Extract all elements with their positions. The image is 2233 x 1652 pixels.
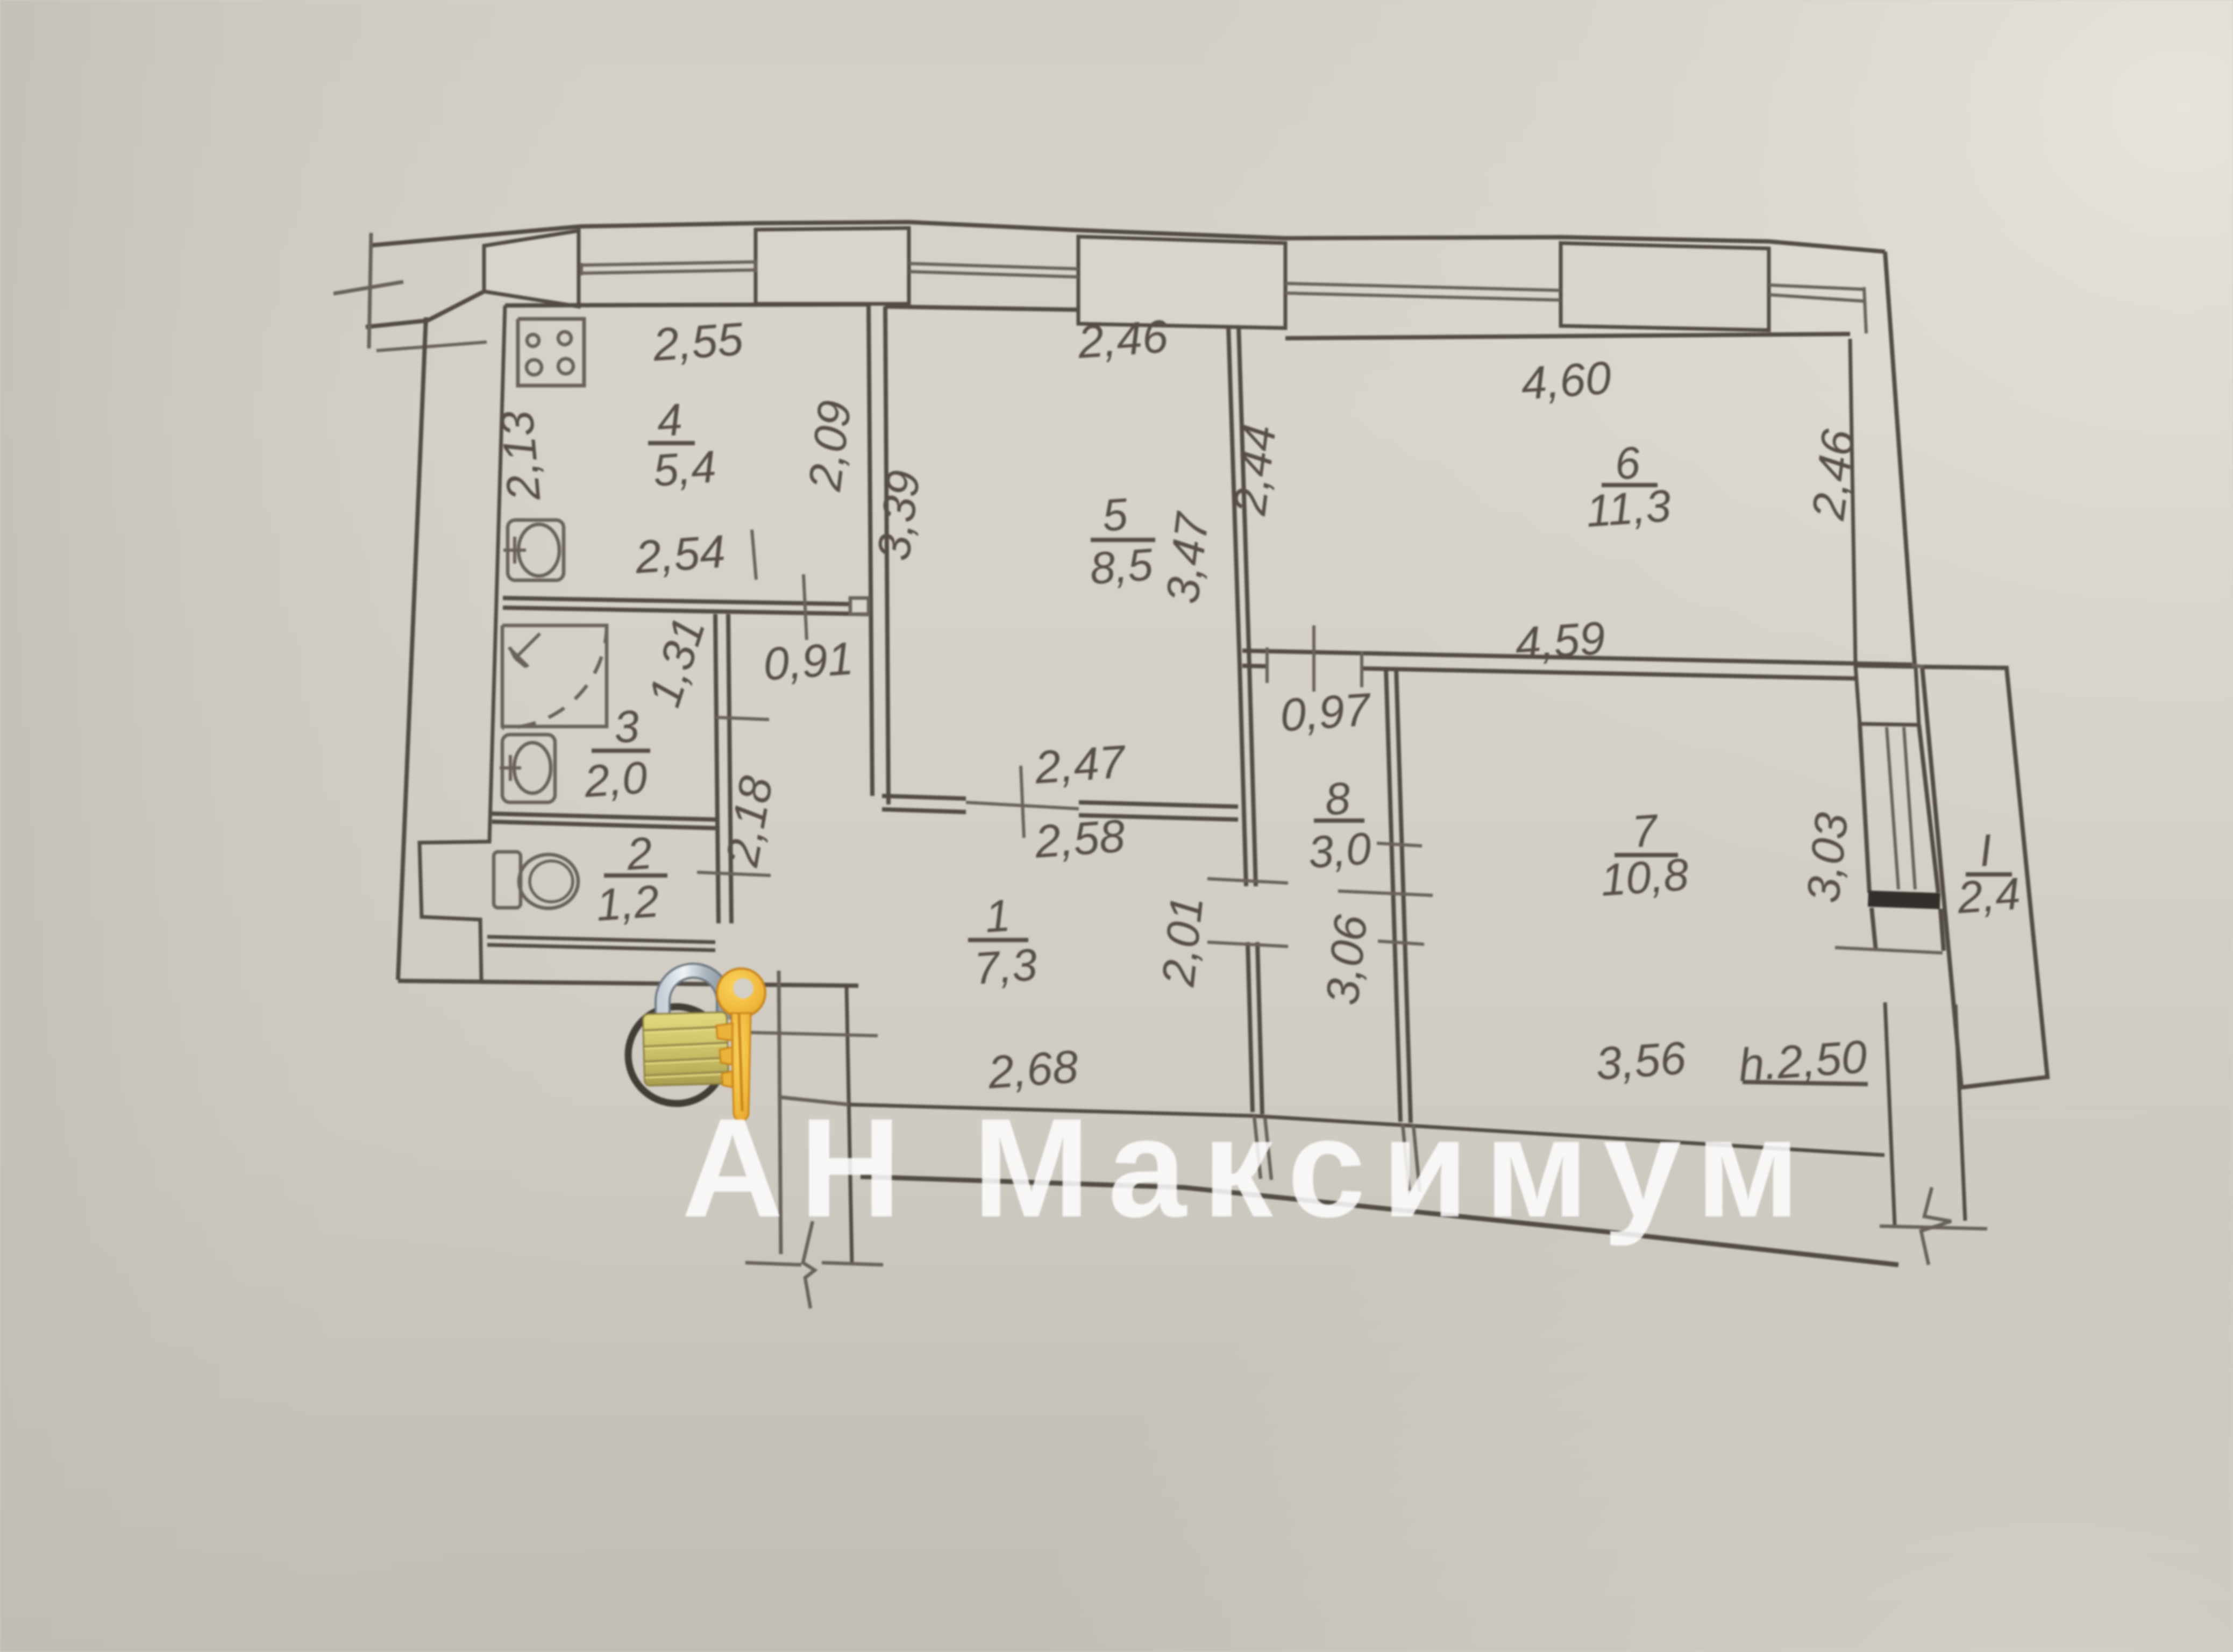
svg-text:3,06: 3,06 bbox=[1317, 913, 1377, 1008]
svg-text:1,2: 1,2 bbox=[594, 875, 660, 930]
svg-text:4: 4 bbox=[655, 394, 684, 446]
svg-text:2,54: 2,54 bbox=[633, 525, 727, 583]
svg-text:3,03: 3,03 bbox=[1797, 810, 1858, 906]
svg-text:2,01: 2,01 bbox=[1153, 894, 1213, 989]
svg-text:4,59: 4,59 bbox=[1513, 612, 1607, 670]
svg-text:8,5: 8,5 bbox=[1088, 539, 1154, 594]
svg-text:2,13: 2,13 bbox=[491, 409, 550, 503]
svg-text:2,09: 2,09 bbox=[799, 398, 861, 494]
svg-text:0,97: 0,97 bbox=[1278, 683, 1374, 742]
svg-text:2,46: 2,46 bbox=[1076, 310, 1170, 368]
svg-text:5,4: 5,4 bbox=[651, 441, 717, 496]
svg-text:2,47: 2,47 bbox=[1033, 736, 1128, 794]
svg-text:3,0: 3,0 bbox=[1306, 823, 1372, 878]
svg-text:2,4: 2,4 bbox=[1955, 868, 2022, 923]
svg-text:2,44: 2,44 bbox=[1224, 422, 1286, 518]
svg-text:3,56: 3,56 bbox=[1594, 1032, 1688, 1090]
svg-text:h.2,50: h.2,50 bbox=[1737, 1031, 1868, 1091]
svg-text:2: 2 bbox=[624, 828, 653, 880]
svg-text:10,8: 10,8 bbox=[1599, 849, 1690, 905]
svg-text:2,55: 2,55 bbox=[651, 313, 745, 371]
svg-text:8: 8 bbox=[1323, 773, 1352, 825]
svg-text:6: 6 bbox=[1613, 437, 1641, 489]
svg-text:1: 1 bbox=[983, 890, 1012, 942]
svg-text:АН Максимум: АН Максимум bbox=[681, 1089, 1816, 1247]
svg-text:2,46: 2,46 bbox=[1802, 426, 1865, 523]
svg-text:7,3: 7,3 bbox=[972, 939, 1039, 994]
svg-text:11,3: 11,3 bbox=[1584, 480, 1672, 537]
svg-text:2,58: 2,58 bbox=[1033, 810, 1127, 868]
svg-text:3,39: 3,39 bbox=[867, 468, 930, 564]
svg-text:0,91: 0,91 bbox=[762, 632, 855, 690]
svg-text:2,0: 2,0 bbox=[582, 752, 649, 807]
svg-text:4,60: 4,60 bbox=[1519, 352, 1613, 409]
svg-text:3: 3 bbox=[612, 701, 641, 753]
svg-text:5: 5 bbox=[1100, 489, 1129, 541]
